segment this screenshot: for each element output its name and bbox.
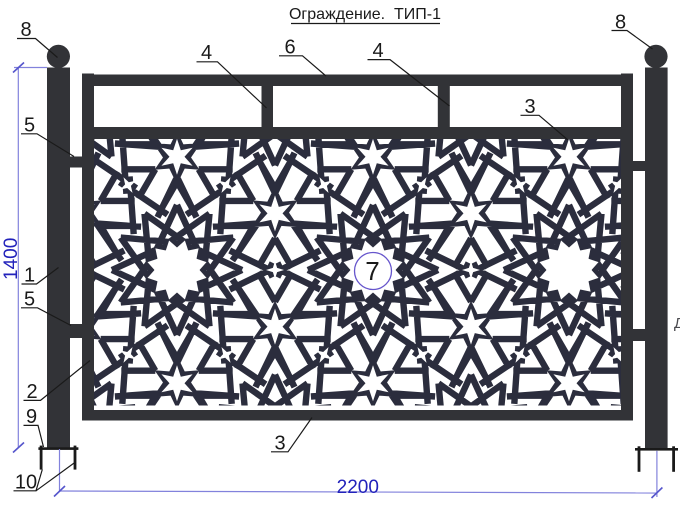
svg-text:1400: 1400 — [1, 238, 22, 280]
svg-text:8: 8 — [20, 19, 31, 41]
svg-text:Ограждение. ТИП-1: Ограждение. ТИП-1 — [289, 6, 441, 23]
svg-text:7: 7 — [365, 256, 379, 286]
svg-text:4: 4 — [372, 40, 383, 62]
svg-text:2: 2 — [26, 381, 37, 403]
svg-text:4: 4 — [201, 42, 212, 64]
svg-text:Д: Д — [674, 315, 680, 332]
svg-text:1: 1 — [24, 265, 35, 287]
svg-text:3: 3 — [524, 96, 535, 118]
svg-text:2200: 2200 — [337, 477, 379, 498]
svg-text:9: 9 — [26, 406, 37, 428]
